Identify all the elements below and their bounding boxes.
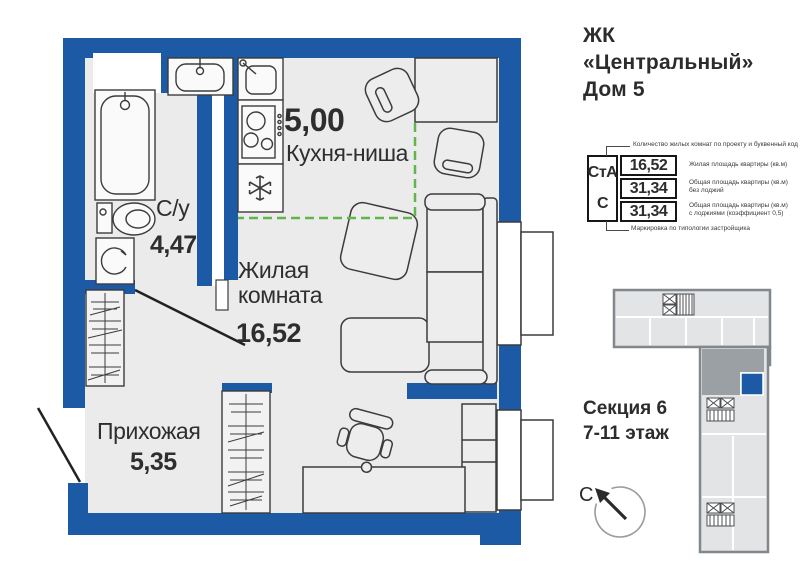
- annotation-total-area: Общая площадь квартиры (кв.м) без лоджий: [689, 179, 788, 195]
- annotation-line: без лоджий: [689, 187, 788, 195]
- bathtub-icon: [95, 90, 155, 200]
- wall-bottom: [68, 513, 521, 535]
- toilet-icon: [97, 203, 155, 235]
- apartment-type-box: СтА С: [587, 155, 618, 222]
- hall-name-label: Прихожая: [97, 419, 200, 444]
- annotation-living-area: Жилая площадь квартиры (кв.м): [689, 161, 787, 169]
- keyplan-highlighted-apartment: [741, 373, 763, 395]
- keyplan-stairs-elevator-icon: [707, 398, 734, 421]
- leader-line: [606, 230, 629, 231]
- bathroom-area-label: 4,47: [150, 233, 197, 258]
- window-icon: [497, 222, 521, 345]
- wall-bottom-notch: [480, 535, 521, 545]
- fridge-icon: [238, 164, 283, 212]
- cooktop-icon: [238, 100, 283, 164]
- section-info: Секция 6 7-11 этаж: [583, 396, 669, 446]
- niche: [93, 53, 161, 93]
- annotation-line: Общая площадь квартиры (кв.м): [689, 202, 788, 210]
- wall-niche-divider: [160, 53, 168, 93]
- project-title: ЖК «Центральный» Дом 5: [583, 22, 754, 103]
- apartment-type-code: СтА: [588, 164, 617, 182]
- section-floors: 7-11 этаж: [583, 421, 669, 446]
- window-sill: [521, 232, 553, 335]
- dining-table-icon: [338, 200, 420, 282]
- leader-line: [606, 146, 607, 156]
- annotation-rooms-code: Количество жилых комнат по проекту и бук…: [633, 141, 798, 149]
- wardrobe-icon: [86, 290, 124, 386]
- hall-area-label: 5,35: [130, 450, 177, 475]
- window-sill: [521, 420, 553, 500]
- washing-machine-icon: [96, 238, 134, 284]
- wall-right-mid: [499, 345, 521, 410]
- section-number: Секция 6: [583, 396, 669, 421]
- living-area-value: 16,52: [620, 155, 677, 176]
- door-frame: [216, 280, 228, 310]
- kitchen-sink-icon: [238, 58, 283, 100]
- living-area-label: 16,52: [236, 320, 301, 347]
- wash-basin-icon: [168, 58, 233, 95]
- wall-left: [63, 38, 85, 408]
- kitchen-units: [238, 58, 283, 212]
- living-name-label: Жилая комната: [238, 258, 343, 308]
- keyplan-stairs-elevator-icon: [707, 503, 734, 526]
- keyplan-stairs-elevator-icon: [663, 294, 694, 315]
- kitchen-area-label: 5,00: [284, 104, 344, 136]
- total-area-value: 31,34: [620, 178, 677, 199]
- leader-line: [606, 146, 630, 147]
- window-icon: [497, 410, 521, 510]
- annotation-typology: Маркировка по типологии застройщика: [631, 225, 750, 233]
- title-line: ЖК: [583, 22, 754, 49]
- wall-interior-stub: [407, 383, 497, 399]
- annotation-line: с лоджиями (коэффициент 0,5): [689, 210, 788, 218]
- annotation-line: Общая площадь квартиры (кв.м): [689, 179, 788, 187]
- kitchen-name-label: Кухня-ниша: [286, 141, 408, 166]
- title-line: Дом 5: [583, 76, 754, 103]
- wall-entrance-stub: [68, 483, 88, 535]
- entrance-door-swing: [38, 408, 80, 482]
- table-icon: [415, 58, 497, 122]
- compass-arrow: [603, 496, 626, 519]
- total-area-coeff-value: 31,34: [620, 201, 677, 222]
- wall-right-top: [499, 38, 521, 222]
- title-line: «Центральный»: [583, 49, 754, 76]
- compass-north-label: С: [579, 484, 593, 507]
- wardrobe-icon: [222, 391, 270, 513]
- floorplan-page: 5,00 Кухня-ниша С/у 4,47 Жилая комната 1…: [0, 0, 800, 566]
- armchair-icon: [432, 126, 485, 179]
- bathroom-name-label: С/у: [156, 196, 189, 221]
- annotation-total-area-coeff: Общая площадь квартиры (кв.м) с лоджиями…: [689, 202, 788, 218]
- apartment-type-letter: С: [597, 195, 608, 213]
